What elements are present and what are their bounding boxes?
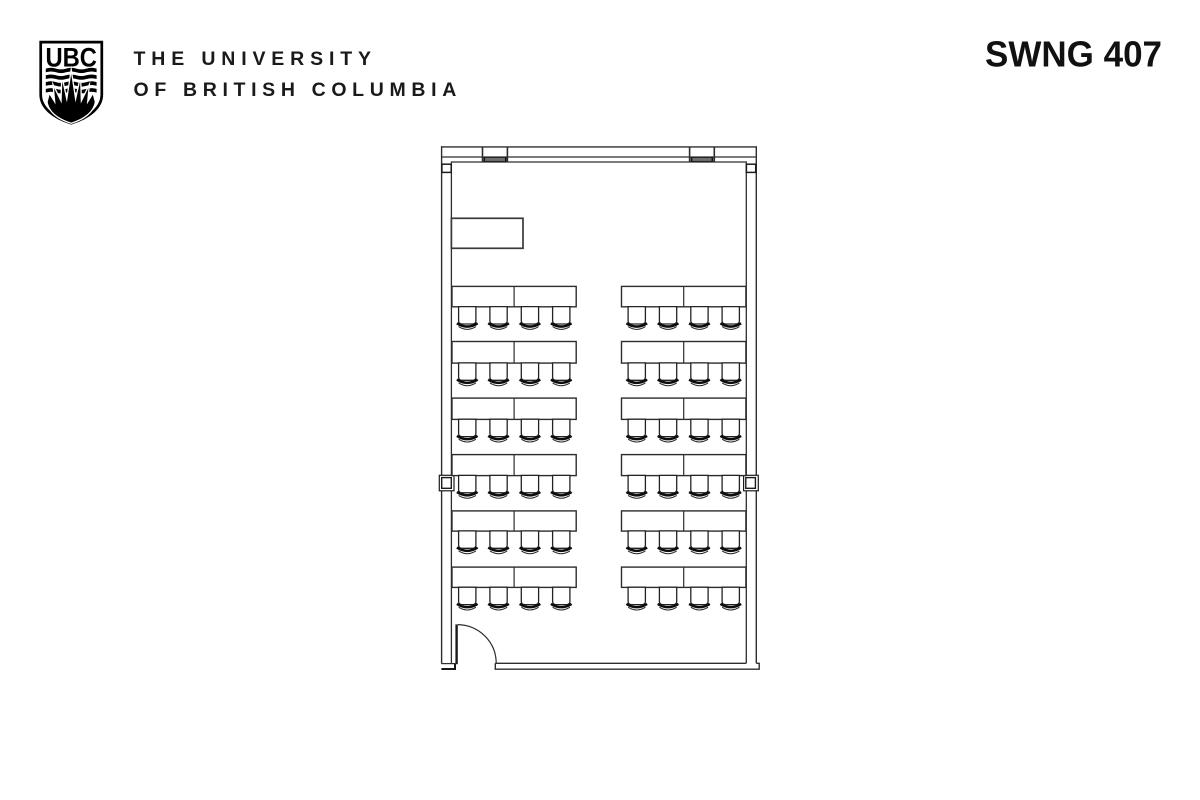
- svg-text:OF BRITISH COLUMBIA: OF BRITISH COLUMBIA: [134, 79, 457, 101]
- svg-text:THE UNIVERSITY: THE UNIVERSITY: [134, 48, 372, 70]
- svg-text:SWNG 407: SWNG 407: [985, 34, 1162, 75]
